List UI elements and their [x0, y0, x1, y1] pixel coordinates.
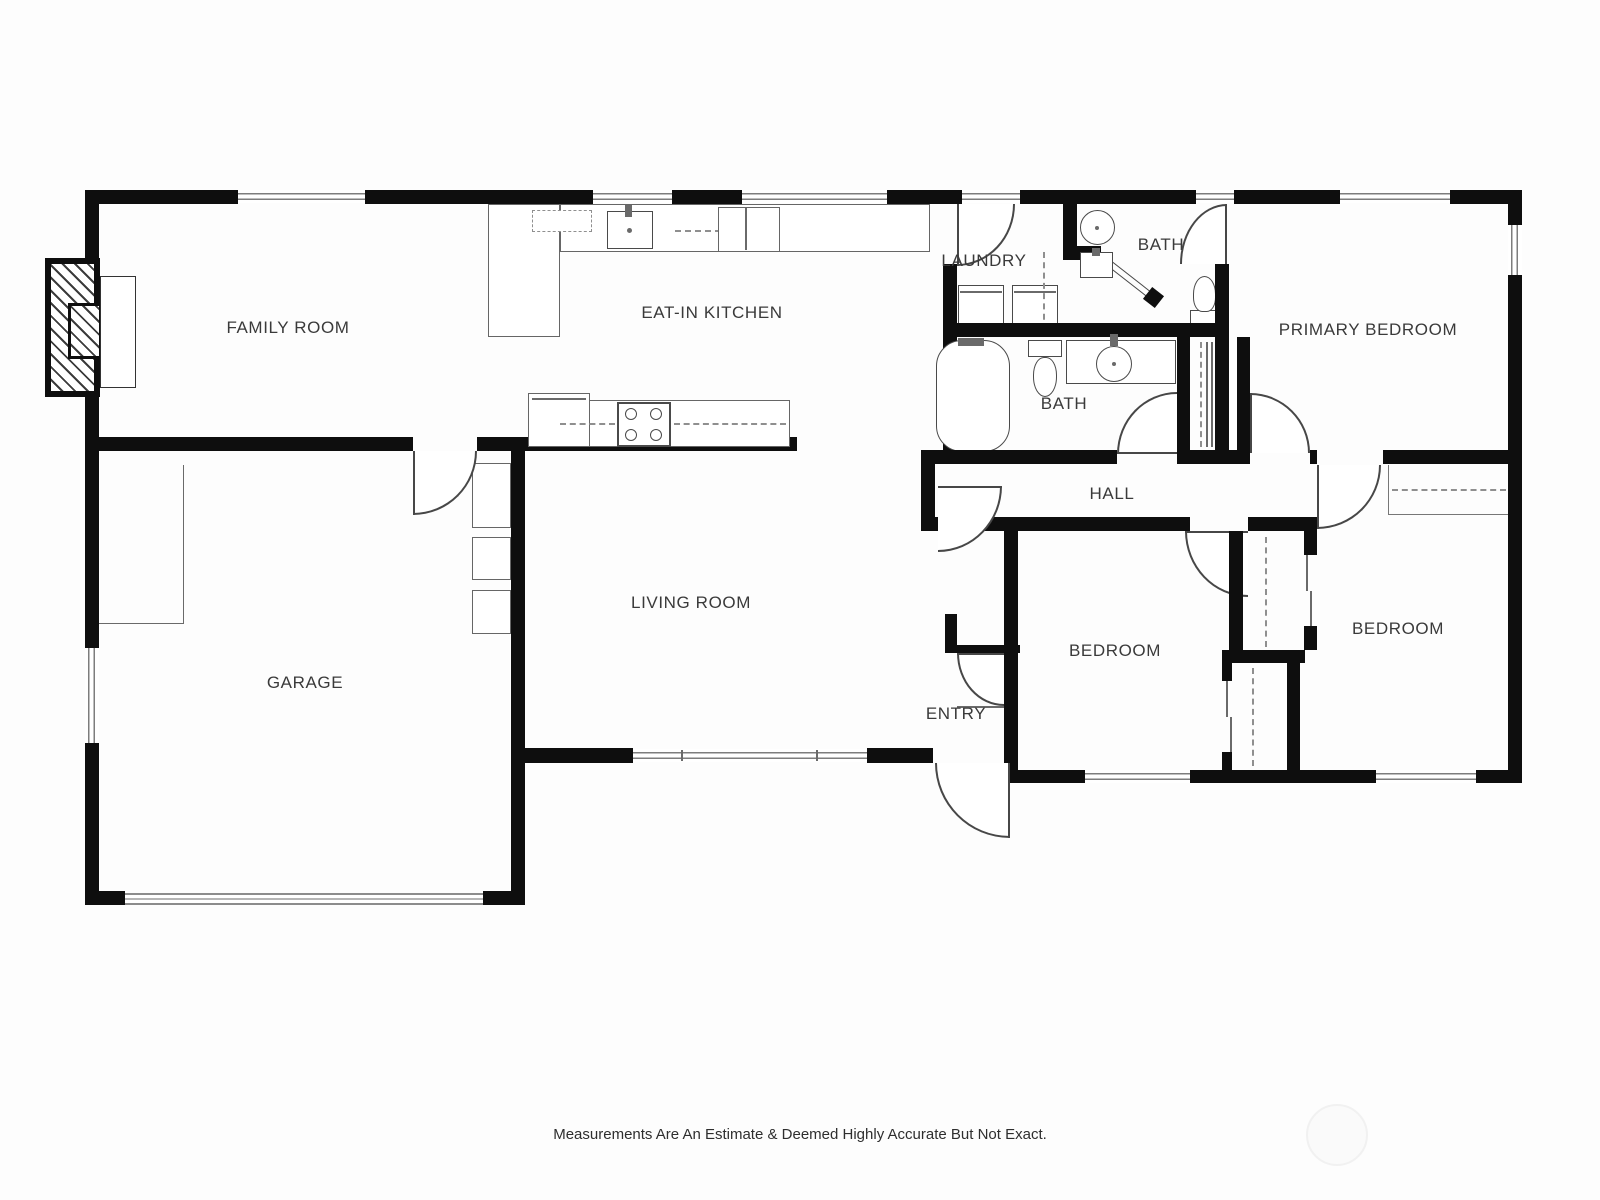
door-bedroom-right-arc	[1317, 465, 1381, 529]
wall	[921, 450, 1117, 464]
window-kitchen-right	[742, 190, 887, 203]
wall	[1229, 531, 1243, 650]
wall	[483, 891, 525, 905]
door-hall-arc	[938, 486, 1002, 552]
wall	[365, 190, 593, 204]
refrigerator	[718, 207, 780, 252]
door-front-arc	[935, 763, 1010, 838]
window-primary-bedroom	[1340, 190, 1450, 203]
door-garage-arc	[413, 451, 477, 515]
washer-panel	[960, 291, 1002, 293]
closet-rod-dashed	[1392, 489, 1506, 491]
wall	[1237, 337, 1250, 450]
room-label-garage: GARAGE	[267, 673, 343, 693]
island-counter-dashed	[674, 423, 786, 425]
stove	[617, 402, 671, 447]
wall	[1018, 770, 1085, 783]
wall	[1222, 663, 1232, 681]
window-bath-top	[1196, 190, 1234, 203]
kitchen-island-cabinet	[528, 393, 590, 447]
room-label-bath-top: BATH	[1138, 235, 1184, 255]
fireplace-hearth	[100, 276, 136, 388]
room-label-family: FAMILY ROOM	[226, 318, 349, 338]
garage-shelf	[472, 537, 511, 580]
kitchen-sink-faucet	[625, 205, 632, 217]
island-counter-dashed	[560, 423, 615, 425]
wall	[672, 190, 742, 204]
toilet-bowl	[1193, 276, 1216, 312]
door-bath-top-arc	[1180, 204, 1227, 264]
wall	[1222, 752, 1232, 770]
door-coat-closet-arc	[957, 653, 1004, 706]
stove-burner	[625, 429, 637, 441]
wall	[1476, 770, 1522, 783]
hall-closet-door-track	[1211, 342, 1213, 447]
wall	[511, 748, 633, 763]
bathtub	[936, 340, 1010, 452]
closet-slider-track	[1310, 591, 1312, 626]
closet-slider-track	[1306, 555, 1308, 591]
wall	[511, 451, 525, 891]
wall	[1222, 650, 1305, 663]
window-bedroom-middle	[1085, 770, 1190, 783]
wall	[1177, 337, 1190, 450]
wall	[1063, 204, 1077, 260]
closet-slider-track	[1230, 717, 1232, 752]
window-mullion	[681, 750, 683, 761]
wall	[943, 190, 957, 204]
garage-shelf	[472, 590, 511, 634]
window-family-room	[238, 190, 365, 203]
wall	[1304, 626, 1317, 650]
stove-burner	[625, 408, 637, 420]
room-label-kitchen: EAT-IN KITCHEN	[641, 303, 782, 323]
wall	[85, 437, 413, 451]
room-label-living: LIVING ROOM	[631, 593, 751, 613]
kitchen-island-edge	[532, 398, 586, 400]
window-kitchen-left	[593, 190, 672, 203]
wall	[85, 392, 99, 648]
bath-mid-sink-drain	[1112, 362, 1116, 366]
wall	[867, 748, 933, 763]
window-mullion	[816, 750, 818, 761]
wall	[85, 190, 99, 265]
refrigerator-divider	[745, 208, 747, 250]
wall	[943, 323, 1215, 337]
wall	[1190, 770, 1376, 783]
door-bath-middle-arc	[1117, 392, 1177, 454]
window-laundry	[962, 190, 1020, 203]
hall-closet-door-track	[1206, 342, 1208, 447]
wall	[1004, 531, 1018, 770]
kitchen-upper-cabinet-dashed	[532, 210, 592, 232]
wall	[85, 190, 238, 204]
garage-shelf	[472, 463, 511, 528]
toilet-bowl	[1033, 357, 1057, 397]
stove-burner	[650, 429, 662, 441]
room-label-bedroom-middle: BEDROOM	[1069, 641, 1161, 661]
wall	[85, 743, 99, 905]
bath-top-sink-faucet	[1092, 248, 1100, 256]
garage-door	[125, 893, 483, 905]
wall	[1215, 264, 1229, 463]
room-label-bath-mid: BATH	[1041, 394, 1087, 414]
closet-slider-track	[1226, 681, 1228, 717]
window-bedroom-right	[1376, 770, 1476, 783]
stove-burner	[650, 408, 662, 420]
wall	[1234, 190, 1340, 204]
shower-drain	[1095, 226, 1099, 230]
wall	[1310, 450, 1317, 464]
bath-mid-faucet	[1110, 334, 1118, 346]
kitchen-sink-drain	[627, 228, 632, 233]
hall-closet-rod-dashed	[1200, 342, 1202, 447]
wall	[1508, 275, 1522, 783]
wall	[85, 891, 125, 905]
wall	[1508, 190, 1522, 225]
window-garage	[85, 648, 99, 743]
room-label-laundry: LAUNDRY	[941, 251, 1026, 271]
closet-rod-dashed	[1265, 537, 1267, 647]
door-primary-bedroom-arc	[1250, 393, 1310, 453]
fireplace-firebox	[68, 303, 102, 359]
wall	[1020, 190, 1196, 204]
room-label-hall: HALL	[1090, 484, 1135, 504]
dryer-panel	[1014, 291, 1056, 293]
window-living-room	[633, 749, 867, 762]
window-primary-bedroom-side	[1508, 225, 1522, 275]
tub-faucet	[958, 338, 984, 346]
room-label-primary: PRIMARY BEDROOM	[1279, 320, 1457, 340]
wall	[1177, 450, 1250, 464]
wall	[1304, 531, 1317, 555]
room-label-bedroom-right: BEDROOM	[1352, 619, 1444, 639]
garage-storage-nook	[99, 465, 184, 624]
wall	[1383, 450, 1522, 464]
room-label-entry: ENTRY	[926, 704, 986, 724]
closet-rod-dashed	[1252, 668, 1254, 766]
watermark-logo	[1306, 1104, 1368, 1166]
laundry-counter-dashed	[1043, 252, 1045, 330]
wall	[1287, 663, 1300, 770]
floor-plan-canvas: FAMILY ROOM EAT-IN KITCHEN LAUNDRY BATH …	[0, 0, 1600, 1200]
wall	[1248, 517, 1317, 531]
toilet-tank	[1028, 340, 1062, 357]
